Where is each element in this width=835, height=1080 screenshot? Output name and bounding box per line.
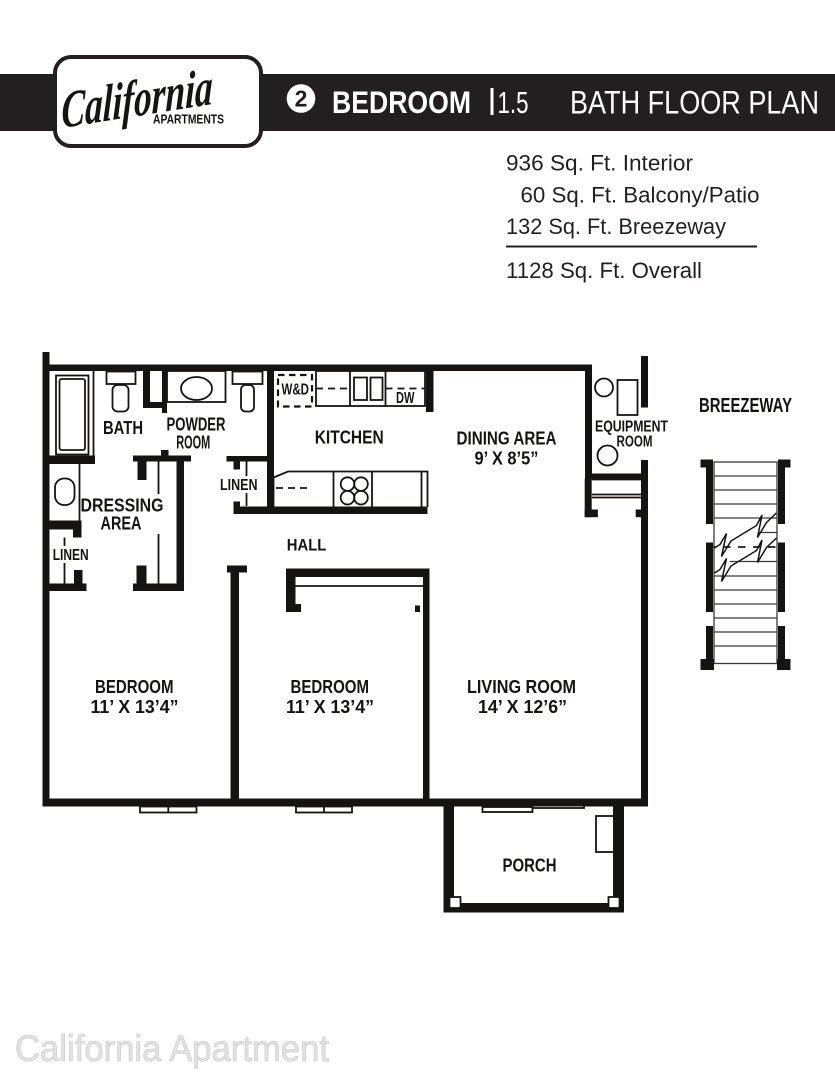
- svg-text:KITCHEN: KITCHEN: [315, 428, 384, 448]
- svg-text:BEDROOM: BEDROOM: [332, 84, 471, 120]
- svg-text:11’ X 13’4”: 11’ X 13’4”: [286, 697, 374, 717]
- svg-text:W&D: W&D: [282, 382, 310, 399]
- svg-text:936 Sq. Ft. Interior: 936 Sq. Ft. Interior: [506, 151, 693, 176]
- svg-text:HALL: HALL: [287, 536, 327, 555]
- svg-text:14’ X 12’6”: 14’ X 12’6”: [478, 697, 567, 717]
- svg-text:BREEZEWAY: BREEZEWAY: [699, 395, 792, 417]
- svg-text:2: 2: [295, 86, 308, 112]
- svg-text:1.5: 1.5: [498, 85, 529, 120]
- svg-text:BATH FLOOR PLAN: BATH FLOOR PLAN: [570, 85, 819, 121]
- svg-text:DINING AREA: DINING AREA: [457, 429, 557, 449]
- svg-text:1128 Sq. Ft. Overall: 1128 Sq. Ft. Overall: [506, 258, 702, 283]
- svg-text:9’ X 8’5”: 9’ X 8’5”: [475, 449, 539, 469]
- svg-text:BEDROOM: BEDROOM: [291, 677, 370, 697]
- svg-text:DRESSING: DRESSING: [81, 496, 164, 516]
- svg-text:ROOM: ROOM: [176, 433, 210, 453]
- svg-text:PORCH: PORCH: [503, 856, 557, 876]
- svg-text:APARTMENTS: APARTMENTS: [153, 113, 224, 127]
- svg-text:BEDROOM: BEDROOM: [95, 677, 174, 697]
- svg-text:11’ X 13’4”: 11’ X 13’4”: [91, 697, 179, 717]
- svg-text:60 Sq. Ft. Balcony/Patio: 60 Sq. Ft. Balcony/Patio: [521, 183, 760, 208]
- svg-text:LIVING ROOM: LIVING ROOM: [467, 677, 576, 697]
- svg-text:AREA: AREA: [101, 514, 142, 534]
- svg-text:LINEN: LINEN: [220, 477, 258, 494]
- svg-text:BATH: BATH: [103, 418, 143, 438]
- svg-text:DW: DW: [396, 390, 415, 407]
- svg-text:POWDER: POWDER: [167, 415, 226, 435]
- svg-text:California Apartment: California Apartment: [15, 1028, 330, 1069]
- svg-text:ROOM: ROOM: [617, 434, 653, 451]
- svg-text:LINEN: LINEN: [53, 547, 89, 564]
- svg-text:132 Sq. Ft. Breezeway: 132 Sq. Ft. Breezeway: [506, 214, 726, 239]
